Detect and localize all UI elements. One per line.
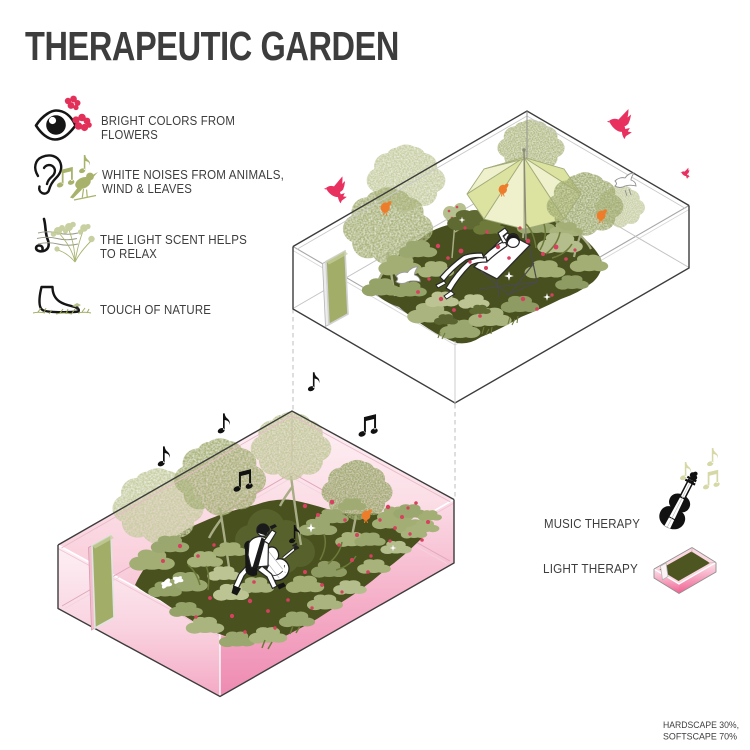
svg-text:LIGHT THERAPY: LIGHT THERAPY: [543, 561, 638, 576]
svg-text:MUSIC THERAPY: MUSIC THERAPY: [544, 516, 640, 531]
svg-text:WHITE NOISES FROM ANIMALS,: WHITE NOISES FROM ANIMALS,: [102, 167, 284, 182]
svg-text:TO RELAX: TO RELAX: [100, 246, 157, 261]
svg-text:WIND & LEAVES: WIND & LEAVES: [102, 181, 192, 196]
svg-text:SOFTSCAPE 70%: SOFTSCAPE 70%: [663, 732, 737, 743]
svg-text:FLOWERS: FLOWERS: [101, 127, 158, 142]
svg-text:BRIGHT COLORS FROM: BRIGHT COLORS FROM: [101, 113, 235, 128]
svg-text:THERAPEUTIC GARDEN: THERAPEUTIC GARDEN: [25, 23, 399, 69]
svg-text:HARDSCAPE 30%,: HARDSCAPE 30%,: [663, 720, 739, 731]
svg-text:THE LIGHT SCENT HELPS: THE LIGHT SCENT HELPS: [100, 232, 247, 247]
svg-text:TOUCH OF NATURE: TOUCH OF NATURE: [100, 302, 211, 317]
